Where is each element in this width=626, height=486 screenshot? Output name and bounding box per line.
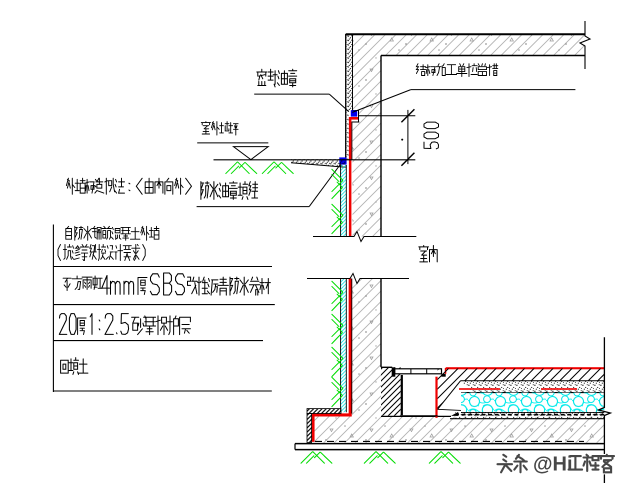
svg-text:@Hi: @Hi <box>533 454 573 476</box>
